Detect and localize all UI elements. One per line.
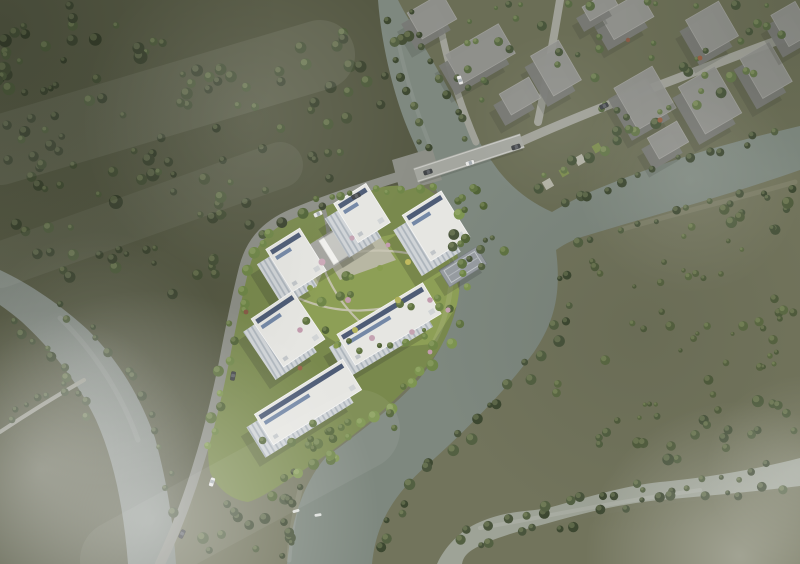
aerial-rendering-stage <box>0 0 800 564</box>
aerial-rendering <box>0 0 800 564</box>
haze-patch-7 <box>470 30 650 210</box>
